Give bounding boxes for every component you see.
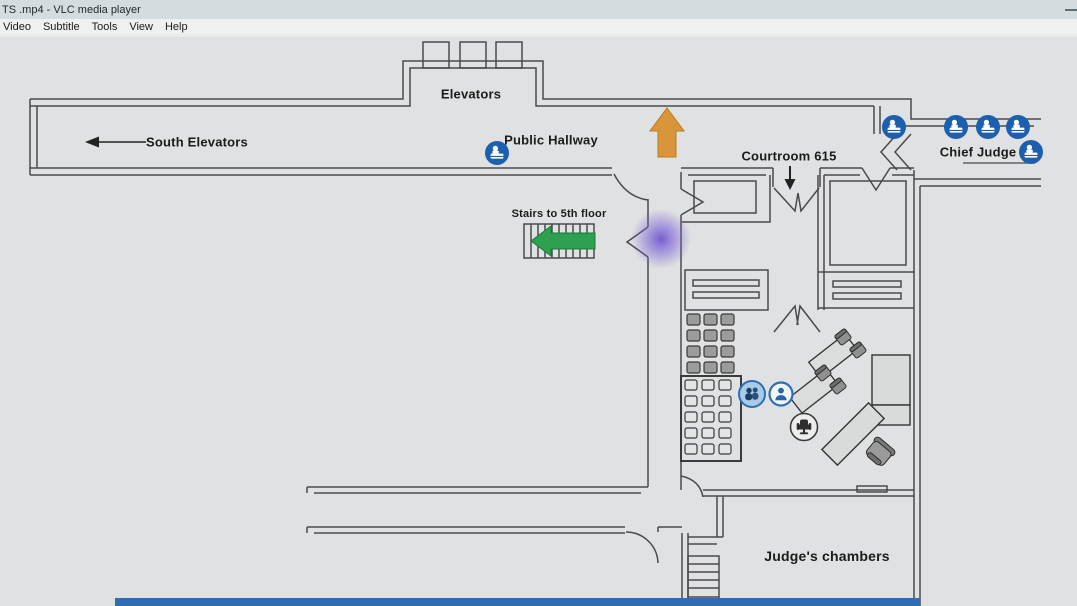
judge-badge-icon [944,115,968,139]
label-stairs: Stairs to 5th floor [512,208,607,220]
video-background [0,34,1077,606]
video-area[interactable]: Elevators South Elevators Public Hallway… [0,0,1077,606]
menu-video[interactable]: Video [3,21,31,33]
label-judges-chambers: Judge's chambers [764,548,890,564]
minimize-icon[interactable] [1065,9,1077,11]
label-courtroom-615: Courtroom 615 [741,149,836,164]
menu-view[interactable]: View [129,21,153,33]
witness-chair-icon [791,414,818,441]
people-icon [739,381,765,407]
purple-highlight [631,209,691,269]
floorplan-svg [0,0,1077,606]
menu-subtitle[interactable]: Subtitle [43,21,80,33]
label-chief-judge: Chief Judge [940,145,1017,160]
label-elevators: Elevators [441,87,501,102]
window-title: TS .mp4 - VLC media player [0,4,141,16]
label-public-hallway: Public Hallway [504,133,598,148]
toolbar-strip [0,34,1077,37]
bottom-blue-bar [115,598,920,606]
judge-badge-icon [882,115,906,139]
person-icon [770,383,793,406]
menu-bar: Video Subtitle Tools View Help [0,19,1077,34]
menu-help[interactable]: Help [165,21,188,33]
judge-badge-icon [1019,140,1043,164]
label-south-elevators: South Elevators [146,135,248,150]
title-bar: TS .mp4 - VLC media player [0,0,1077,19]
judge-badge-icon [1006,115,1030,139]
menu-tools[interactable]: Tools [92,21,118,33]
judge-badge-icon [976,115,1000,139]
